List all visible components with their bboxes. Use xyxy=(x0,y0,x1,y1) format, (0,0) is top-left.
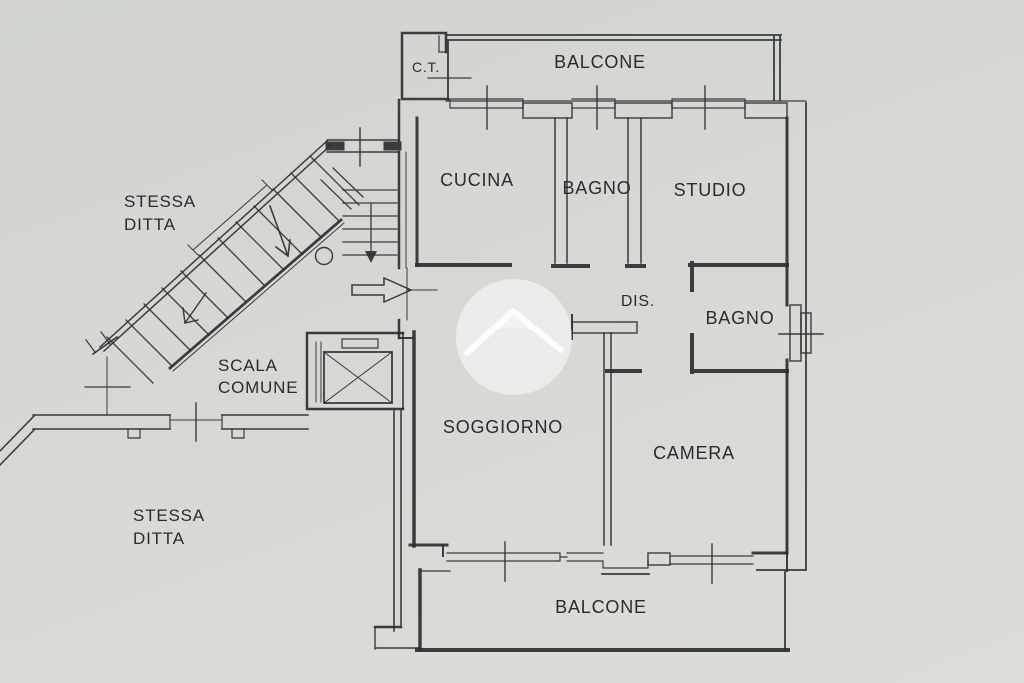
room-label-studio: STUDIO xyxy=(674,180,747,200)
room-label-soggiorno: SOGGIORNO xyxy=(443,417,563,437)
common-lower-walls xyxy=(0,357,420,649)
stair-winders xyxy=(321,168,397,255)
label-scala-comune: SCALA xyxy=(218,356,278,375)
house-roof-watermark-icon xyxy=(456,279,572,395)
room-label-camera: CAMERA xyxy=(653,443,735,463)
window-center-ticks xyxy=(505,542,712,583)
top-wall-windows xyxy=(446,86,806,129)
right-wall xyxy=(757,103,823,570)
room-label-bagno-1: BAGNO xyxy=(562,178,631,198)
room-label-dis: DIS. xyxy=(621,293,655,310)
room-label-cucina: CUCINA xyxy=(440,170,514,190)
label-stessa-ditta-top: DITTA xyxy=(124,215,176,234)
label-stessa-ditta-top: STESSA xyxy=(124,192,196,211)
staircase xyxy=(86,141,397,383)
room-label-bagno-2: BAGNO xyxy=(705,308,774,328)
stair-direction-arrow-icon xyxy=(183,293,206,323)
label-stessa-ditta-bottom: DITTA xyxy=(133,529,185,548)
label-scala-comune: COMUNE xyxy=(218,378,298,397)
left-wall-entrance xyxy=(327,100,417,546)
entry-direction-arrow-icon xyxy=(352,278,437,302)
column-circle xyxy=(316,248,333,265)
room-label-balcone-top: BALCONE xyxy=(554,52,646,72)
room-label-balcone-bottom: BALCONE xyxy=(555,597,647,617)
room-label-ct: C.T. xyxy=(412,59,440,75)
label-stessa-ditta-bottom: STESSA xyxy=(133,506,205,525)
floor-plan-drawing: BALCONE C.T. CUCINA BAGNO STUDIO DIS. BA… xyxy=(0,0,1024,683)
elevator xyxy=(307,333,403,409)
bottom-wall-windows xyxy=(410,542,787,583)
stair-direction-arrow-icon xyxy=(270,206,290,256)
stair-direction-arrow-icon xyxy=(365,251,377,263)
floor-plan-scan: BALCONE C.T. CUCINA BAGNO STUDIO DIS. BA… xyxy=(0,0,1024,683)
